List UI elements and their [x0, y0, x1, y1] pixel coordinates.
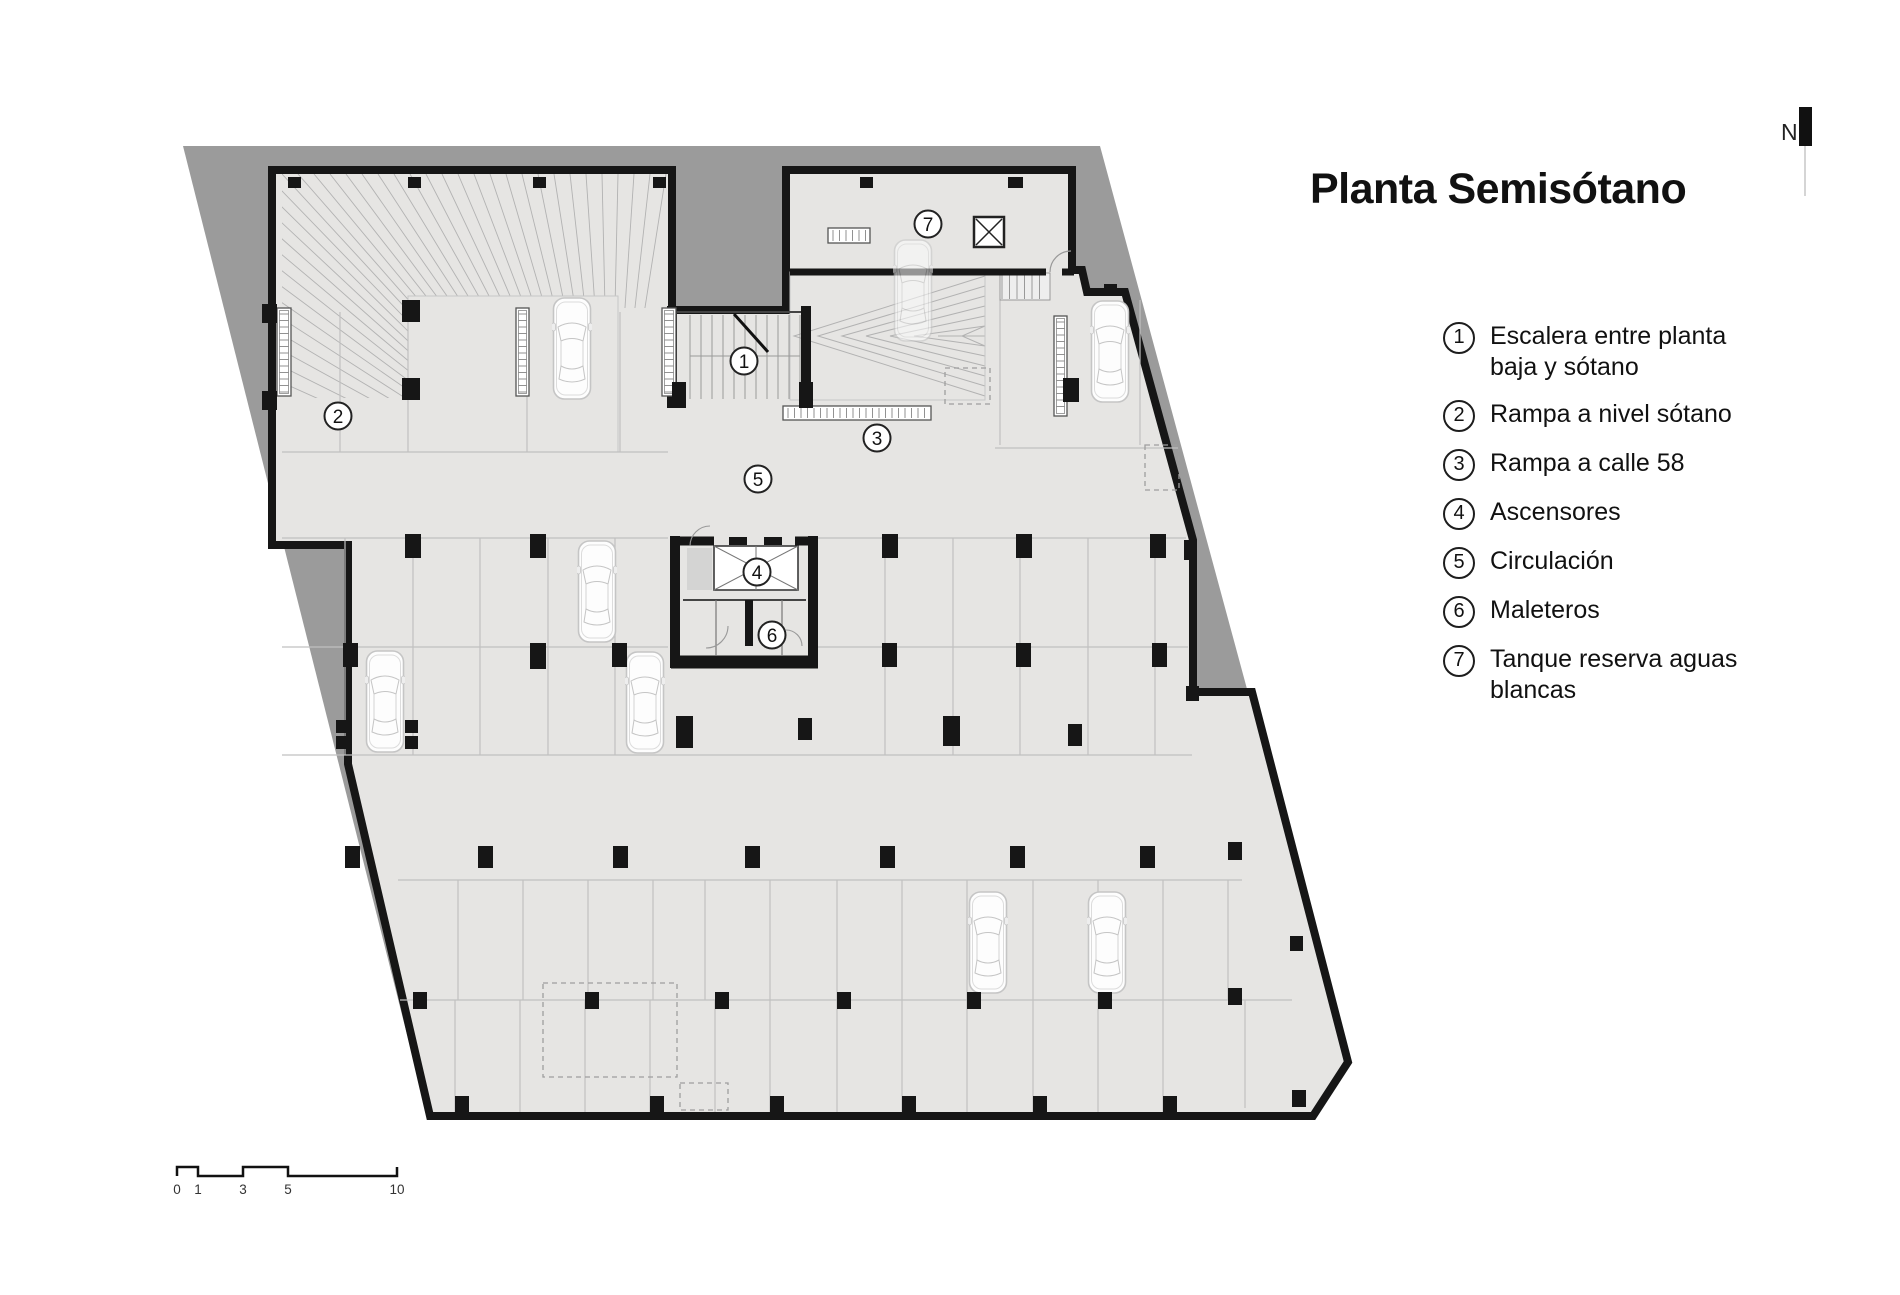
north-indicator: N	[1781, 107, 1812, 196]
legend-item-1: 1Escalera entre planta baja y sótano	[1443, 322, 1773, 383]
column	[345, 846, 360, 868]
column	[1184, 540, 1197, 560]
legend-number-badge: 3	[1443, 449, 1475, 481]
scale-mark-label: 1	[194, 1182, 202, 1197]
column	[533, 177, 546, 188]
column	[1033, 1096, 1047, 1113]
column	[408, 177, 421, 188]
plan-marker-3: 3	[864, 425, 891, 452]
svg-text:1: 1	[739, 352, 750, 373]
column	[336, 736, 349, 749]
legend-item-5: 5Circulación	[1443, 547, 1773, 579]
column	[530, 643, 546, 669]
column	[336, 720, 349, 733]
scale-mark-label: 3	[239, 1182, 247, 1197]
column	[402, 378, 420, 400]
column	[799, 382, 813, 408]
column	[413, 992, 427, 1009]
column	[478, 846, 493, 868]
column	[405, 720, 418, 733]
svg-text:2: 2	[333, 407, 344, 428]
column	[1010, 846, 1025, 868]
column	[672, 382, 686, 408]
vent-grille-icon	[277, 308, 291, 396]
column	[1016, 534, 1032, 558]
column	[882, 643, 897, 667]
legend-item-2: 2Rampa a nivel sótano	[1443, 400, 1773, 432]
car-icon	[1087, 892, 1128, 993]
column	[650, 1096, 664, 1113]
legend: 1Escalera entre planta baja y sótano2Ram…	[1443, 322, 1773, 723]
column	[1104, 284, 1117, 296]
floor-grate-icon	[828, 228, 870, 243]
column	[880, 846, 895, 868]
column	[585, 992, 599, 1009]
column	[455, 1096, 469, 1113]
legend-number-badge: 5	[1443, 547, 1475, 579]
column	[262, 391, 277, 410]
column	[530, 534, 546, 558]
column	[343, 643, 358, 667]
car-icon	[893, 240, 934, 341]
column	[1228, 988, 1242, 1005]
drawing-sheet: 1234567 N 013510 Planta Semisótano 1Esca…	[0, 0, 1900, 1295]
north-label: N	[1781, 119, 1798, 145]
scale-bar: 013510	[173, 1167, 404, 1197]
page-title: Planta Semisótano	[1310, 165, 1686, 214]
column	[1008, 177, 1023, 188]
floor-grate-icon	[783, 406, 931, 420]
column	[770, 1096, 784, 1113]
legend-label: Escalera entre planta baja y sótano	[1490, 321, 1762, 383]
plan-marker-5: 5	[745, 466, 772, 493]
plan-marker-6: 6	[759, 622, 786, 649]
column	[1163, 1096, 1177, 1113]
column	[1290, 936, 1303, 951]
car-icon	[968, 892, 1009, 993]
svg-text:4: 4	[752, 563, 763, 584]
car-icon	[552, 298, 593, 399]
car-icon	[577, 541, 618, 642]
car-icon	[365, 651, 406, 752]
column	[882, 534, 898, 558]
legend-label: Rampa a calle 58	[1490, 448, 1762, 479]
svg-text:6: 6	[767, 626, 778, 647]
column	[1152, 643, 1167, 667]
column	[1140, 846, 1155, 868]
column	[1292, 1090, 1306, 1107]
legend-label: Rampa a nivel sótano	[1490, 399, 1762, 430]
column	[405, 534, 421, 558]
svg-text:7: 7	[923, 215, 934, 236]
column	[860, 177, 873, 188]
legend-number-badge: 1	[1443, 322, 1475, 354]
column	[1186, 686, 1199, 701]
column	[745, 846, 760, 868]
column	[837, 992, 851, 1009]
column	[288, 177, 301, 188]
legend-item-4: 4Ascensores	[1443, 498, 1773, 530]
legend-label: Circulación	[1490, 546, 1762, 577]
plan-marker-1: 1	[731, 348, 758, 375]
legend-number-badge: 2	[1443, 400, 1475, 432]
column	[798, 718, 812, 740]
plan-marker-2: 2	[325, 403, 352, 430]
column	[1150, 534, 1166, 558]
column	[405, 736, 418, 749]
legend-label: Tanque reserva aguas blancas	[1490, 644, 1762, 706]
column	[613, 846, 628, 868]
column	[1228, 842, 1242, 860]
scale-mark-label: 0	[173, 1182, 181, 1197]
legend-number-badge: 6	[1443, 596, 1475, 628]
column	[653, 177, 666, 188]
column	[1068, 724, 1082, 746]
legend-number-badge: 7	[1443, 645, 1475, 677]
svg-text:3: 3	[872, 429, 883, 450]
car-icon	[625, 652, 666, 753]
svg-text:5: 5	[753, 470, 764, 491]
scale-mark-label: 10	[389, 1182, 404, 1197]
column	[1098, 992, 1112, 1009]
column	[676, 716, 693, 748]
legend-label: Maleteros	[1490, 595, 1762, 626]
legend-label: Ascensores	[1490, 497, 1762, 528]
column	[612, 643, 627, 667]
north-arrow-icon	[1799, 107, 1812, 146]
column	[402, 300, 420, 322]
car-icon	[1090, 301, 1131, 402]
legend-number-badge: 4	[1443, 498, 1475, 530]
column	[715, 992, 729, 1009]
column	[1016, 643, 1031, 667]
column	[943, 716, 960, 746]
column	[902, 1096, 916, 1113]
vent-grille-icon	[516, 308, 529, 396]
column	[967, 992, 981, 1009]
column	[1063, 378, 1079, 402]
plan-marker-4: 4	[744, 559, 771, 586]
scale-mark-label: 5	[284, 1182, 292, 1197]
legend-item-7: 7Tanque reserva aguas blancas	[1443, 645, 1773, 706]
legend-item-3: 3Rampa a calle 58	[1443, 449, 1773, 481]
plan-marker-7: 7	[915, 211, 942, 238]
exterior-stair	[1000, 273, 1050, 300]
legend-item-6: 6Maleteros	[1443, 596, 1773, 628]
column	[262, 304, 277, 323]
